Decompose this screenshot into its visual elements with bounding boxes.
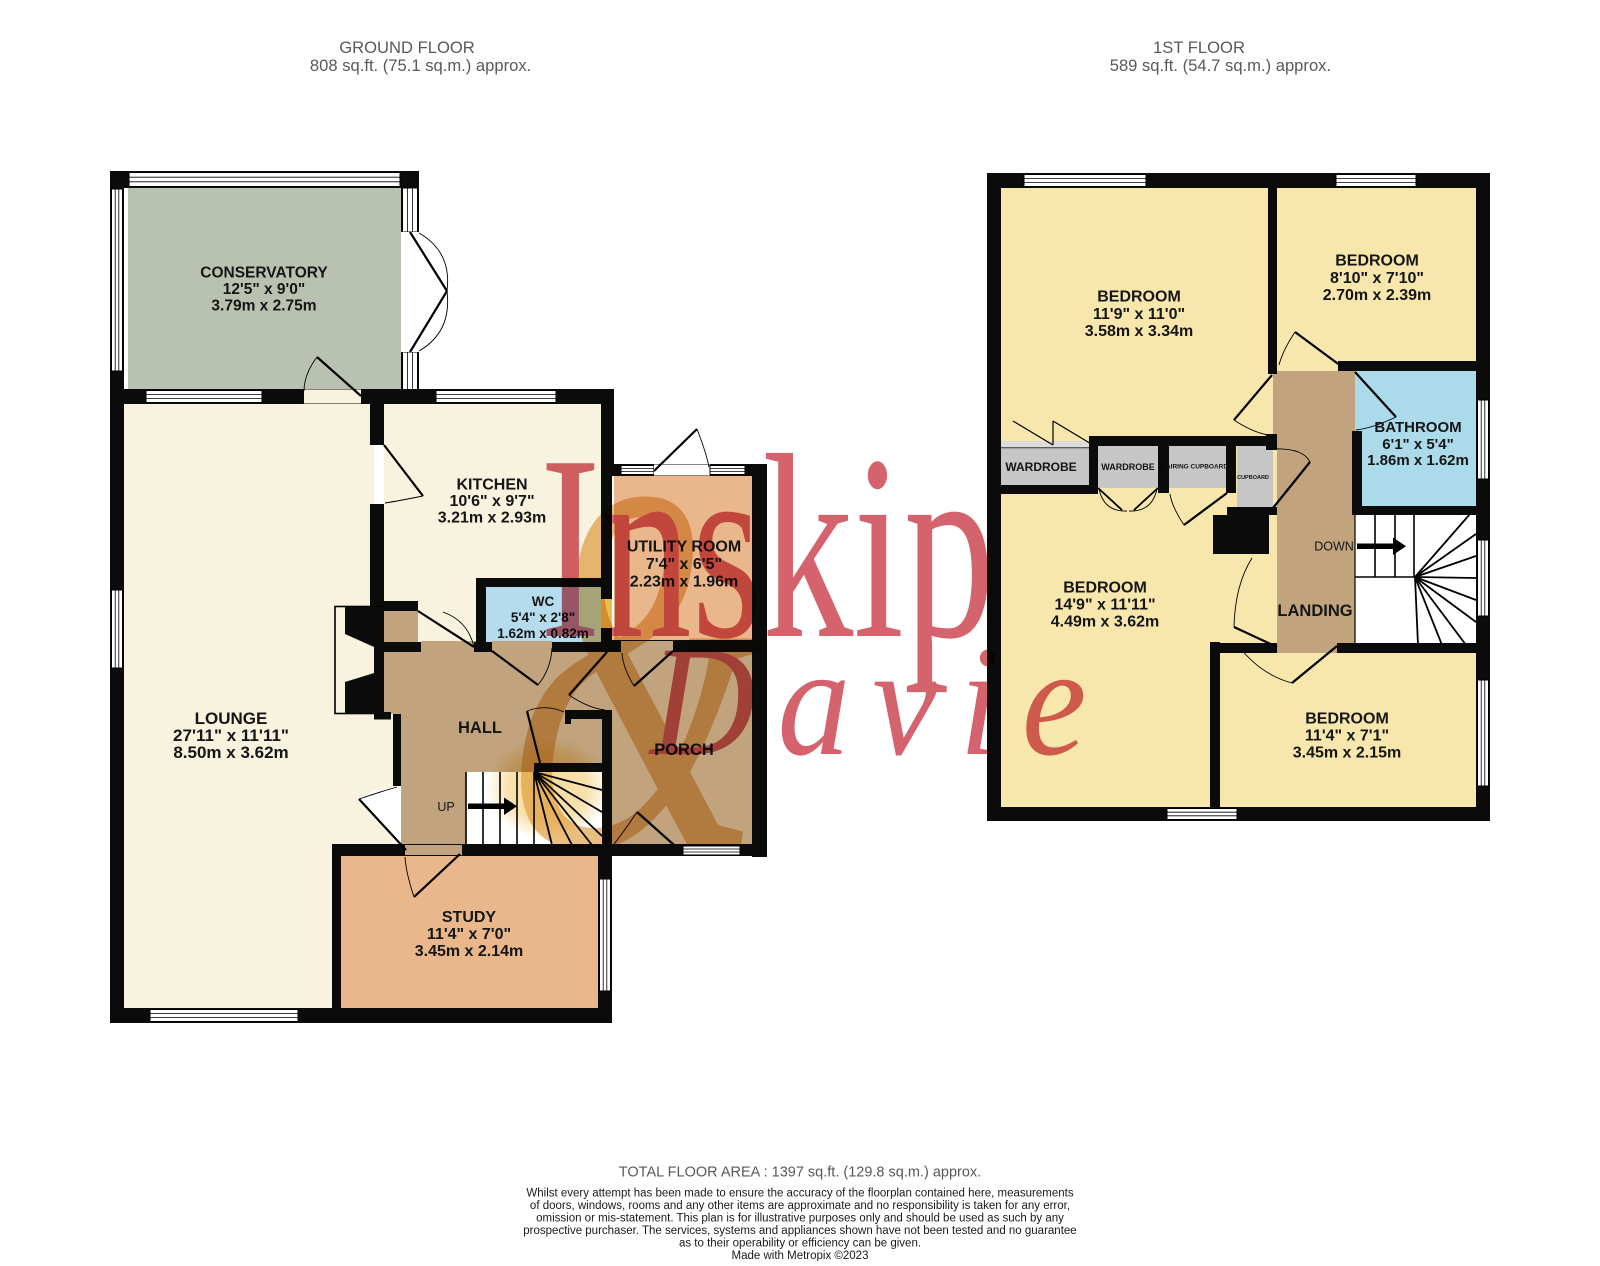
svg-text:WARDROBE: WARDROBE	[1101, 462, 1155, 472]
svg-text:CUPBOARD: CUPBOARD	[1237, 475, 1269, 481]
svg-text:TOTAL FLOOR AREA : 1397 sq.ft.: TOTAL FLOOR AREA : 1397 sq.ft. (129.8 sq…	[619, 1165, 981, 1181]
svg-text:Davie: Davie	[648, 614, 1108, 788]
svg-text:808 sq.ft. (75.1 sq.m.) approx: 808 sq.ft. (75.1 sq.m.) approx.	[310, 56, 531, 75]
svg-text:8.50m x 3.62m: 8.50m x 3.62m	[173, 743, 288, 762]
svg-text:589 sq.ft. (54.7 sq.m.) approx: 589 sq.ft. (54.7 sq.m.) approx.	[1110, 56, 1331, 75]
svg-text:HALL: HALL	[458, 719, 502, 737]
svg-text:CONSERVATORY: CONSERVATORY	[200, 264, 328, 281]
svg-text:GROUND FLOOR: GROUND FLOOR	[339, 38, 475, 57]
svg-text:omission or mis-statement. Thi: omission or mis-statement. This plan is …	[536, 1213, 1064, 1225]
svg-text:UP: UP	[437, 800, 454, 814]
svg-text:BEDROOM: BEDROOM	[1335, 253, 1419, 270]
svg-text:DOWN: DOWN	[1314, 539, 1354, 553]
svg-text:2.70m x 2.39m: 2.70m x 2.39m	[1323, 287, 1432, 304]
svg-text:3.21m x 2.93m: 3.21m x 2.93m	[438, 510, 547, 527]
svg-text:prospective purchaser. The ser: prospective purchaser. The services, sys…	[523, 1225, 1076, 1237]
svg-text:KITCHEN: KITCHEN	[456, 477, 527, 494]
svg-text:10'6" x 9'7": 10'6" x 9'7"	[449, 493, 534, 510]
svg-text:14'9" x 11'11": 14'9" x 11'11"	[1054, 597, 1155, 614]
svg-text:1.86m x 1.62m: 1.86m x 1.62m	[1367, 452, 1469, 469]
svg-text:BEDROOM: BEDROOM	[1097, 289, 1181, 306]
svg-text:11'9" x 11'0": 11'9" x 11'0"	[1093, 306, 1185, 323]
svg-text:as to their operability or eff: as to their operability or efficiency ca…	[679, 1237, 921, 1249]
svg-text:of doors, windows, rooms and a: of doors, windows, rooms and any other i…	[530, 1200, 1070, 1212]
svg-text:6'1" x 5'4": 6'1" x 5'4"	[1382, 436, 1453, 453]
svg-text:Whilst every attempt has been: Whilst every attempt has been made to en…	[526, 1188, 1073, 1200]
svg-text:3.45m x 2.15m: 3.45m x 2.15m	[1293, 745, 1402, 762]
svg-text:BEDROOM: BEDROOM	[1063, 580, 1147, 597]
svg-text:3.79m x 2.75m: 3.79m x 2.75m	[211, 297, 316, 314]
svg-text:Made with Metropix ©2023: Made with Metropix ©2023	[732, 1250, 869, 1261]
svg-text:12'5" x 9'0": 12'5" x 9'0"	[223, 281, 305, 298]
svg-text:8'10" x 7'10": 8'10" x 7'10"	[1330, 270, 1424, 287]
svg-text:11'4" x 7'1": 11'4" x 7'1"	[1305, 728, 1389, 745]
svg-text:3.58m x 3.34m: 3.58m x 3.34m	[1085, 323, 1194, 340]
svg-text:LANDING: LANDING	[1277, 602, 1352, 620]
svg-text:1ST FLOOR: 1ST FLOOR	[1153, 38, 1245, 57]
svg-text:BATHROOM: BATHROOM	[1374, 419, 1461, 436]
svg-text:AIRING CUPBOARD: AIRING CUPBOARD	[1166, 463, 1228, 470]
svg-text:BEDROOM: BEDROOM	[1305, 711, 1389, 728]
svg-text:WARDROBE: WARDROBE	[1005, 460, 1076, 474]
